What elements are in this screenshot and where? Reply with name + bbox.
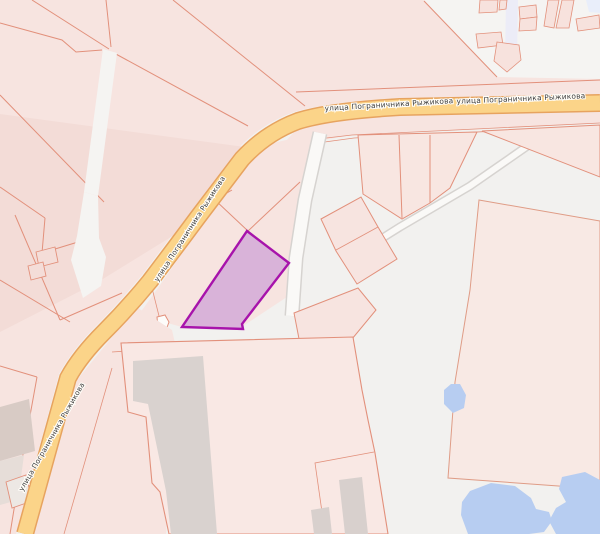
map-canvas[interactable]: улица Пограничника Рыжикова улица Погран… (0, 0, 600, 534)
small-building-1 (311, 507, 332, 534)
building-bottomleft (0, 399, 35, 461)
map-viewport[interactable]: улица Пограничника Рыжикова улица Погран… (0, 0, 600, 534)
